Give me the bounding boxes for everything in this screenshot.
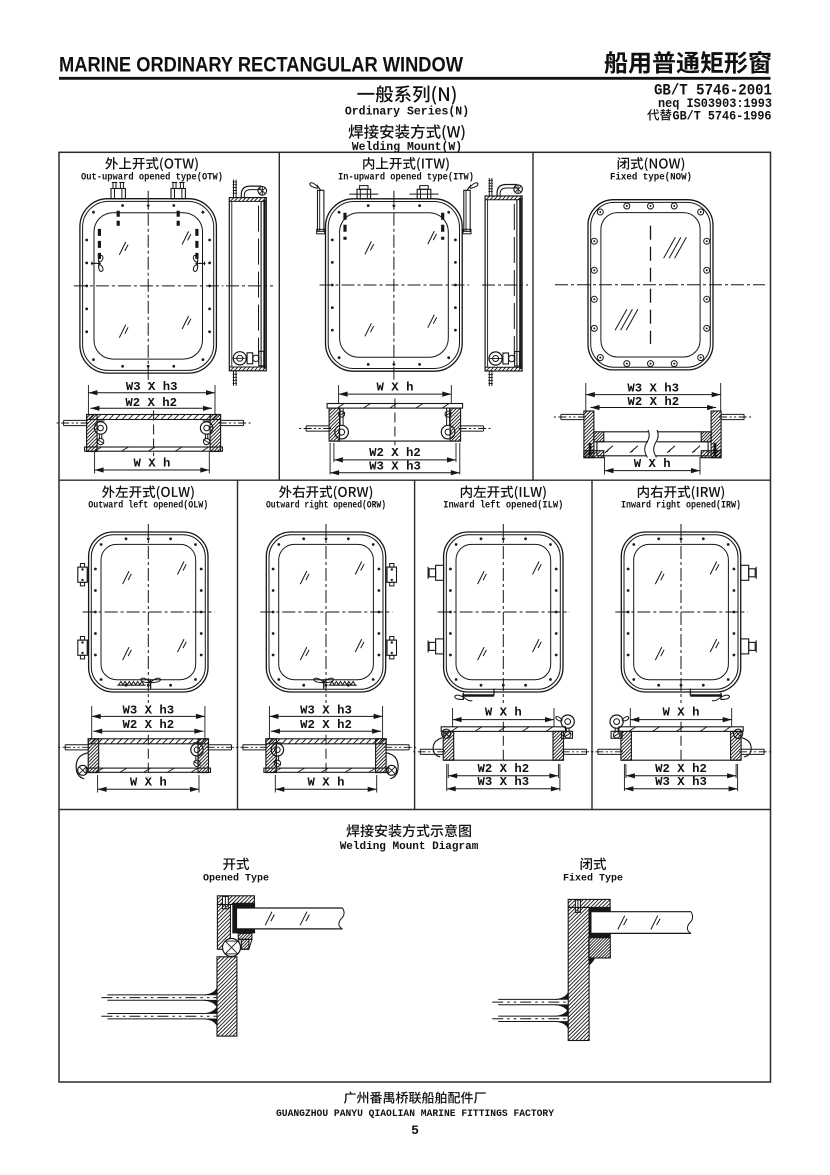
svg-text:Ordinary Series(N): Ordinary Series(N): [345, 106, 469, 119]
svg-text:W2 X h2: W2 X h2: [369, 446, 421, 460]
svg-text:Inward right opened(IRW): Inward right opened(IRW): [621, 500, 741, 511]
svg-text:W2 X h2: W2 X h2: [125, 396, 177, 410]
svg-text:W2 X h2: W2 X h2: [477, 762, 529, 776]
svg-text:Outward left opened(OLW): Outward left opened(OLW): [88, 500, 208, 511]
svg-text:Outward right opened(ORW): Outward right opened(ORW): [266, 500, 386, 511]
svg-text:W X h: W X h: [663, 706, 700, 720]
svg-text:W X h: W X h: [377, 381, 414, 395]
svg-text:GUANGZHOU PANYU QIAOLIAN MARIN: GUANGZHOU PANYU QIAOLIAN MARINE FITTINGS…: [276, 1108, 555, 1120]
svg-text:W2 X h2: W2 X h2: [122, 718, 174, 732]
svg-text:W2 X h2: W2 X h2: [655, 762, 707, 776]
svg-text:Fixed Type: Fixed Type: [563, 873, 623, 885]
svg-text:W X h: W X h: [308, 775, 345, 789]
svg-text:Fixed type(NOW): Fixed type(NOW): [610, 172, 692, 183]
svg-text:W3 X h3: W3 X h3: [655, 775, 707, 789]
svg-text:5: 5: [411, 1123, 419, 1138]
svg-text:GB/T 5746-1996: GB/T 5746-1996: [673, 110, 772, 124]
svg-text:W3 X h3: W3 X h3: [126, 380, 178, 394]
svg-text:W3 X h3: W3 X h3: [369, 460, 421, 474]
svg-text:W2 X h2: W2 X h2: [627, 395, 679, 409]
svg-text:Opened Type: Opened Type: [203, 873, 269, 885]
svg-text:W X h: W X h: [130, 775, 167, 789]
svg-text:W X h: W X h: [634, 457, 671, 471]
svg-text:Inward left opened(ILW): Inward left opened(ILW): [443, 500, 563, 511]
svg-text:W2 X h2: W2 X h2: [300, 718, 352, 732]
svg-text:In-upward opened type(ITW): In-upward opened type(ITW): [338, 172, 474, 183]
svg-text:Welding Mount Diagram: Welding Mount Diagram: [340, 841, 479, 853]
svg-text:Out-upward opened type(OTW): Out-upward opened type(OTW): [81, 172, 223, 183]
svg-text:W X h: W X h: [485, 706, 522, 720]
svg-text:MARINE ORDINARY RECTANGULAR WI: MARINE ORDINARY RECTANGULAR WINDOW: [59, 53, 464, 77]
svg-text:W3 X h3: W3 X h3: [477, 775, 529, 789]
svg-text:W3 X h3: W3 X h3: [300, 703, 352, 717]
svg-text:W X h: W X h: [133, 457, 170, 471]
svg-text:W3 X h3: W3 X h3: [122, 703, 174, 717]
svg-text:W3 X h3: W3 X h3: [627, 382, 679, 396]
